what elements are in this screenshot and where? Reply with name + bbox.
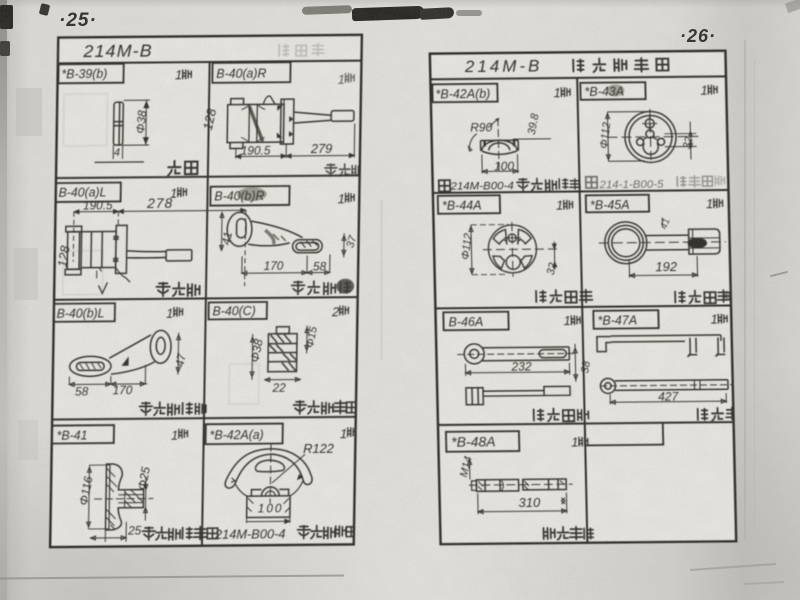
svg-text:25: 25 xyxy=(127,523,142,537)
svg-text:Φ112: Φ112 xyxy=(460,232,475,260)
svg-text:*B-39(b): *B-39(b) xyxy=(61,66,107,80)
svg-text:R122: R122 xyxy=(303,440,334,455)
svg-text:*B-42A(b): *B-42A(b) xyxy=(436,86,491,101)
svg-text:170: 170 xyxy=(113,382,133,396)
svg-text:Φ38: Φ38 xyxy=(133,109,149,134)
svg-text:190.5: 190.5 xyxy=(83,198,113,212)
svg-text:192: 192 xyxy=(656,259,679,274)
svg-text:*B-45A: *B-45A xyxy=(590,197,630,211)
svg-text:128: 128 xyxy=(55,243,73,267)
svg-text:*B-47A: *B-47A xyxy=(598,313,638,327)
svg-text:214M-B00-4: 214M-B00-4 xyxy=(450,180,515,193)
svg-text:1: 1 xyxy=(554,85,562,100)
svg-text:1: 1 xyxy=(340,425,347,440)
svg-text:1: 1 xyxy=(706,196,714,211)
svg-text:Φ112: Φ112 xyxy=(599,121,614,149)
svg-text:1: 1 xyxy=(175,67,182,82)
svg-text:170: 170 xyxy=(264,258,284,272)
svg-text:190.5: 190.5 xyxy=(241,143,271,157)
svg-text:279: 279 xyxy=(310,140,333,155)
svg-text:Φ38: Φ38 xyxy=(248,337,266,363)
svg-text:427: 427 xyxy=(658,389,680,403)
svg-text:B-46A: B-46A xyxy=(449,314,484,328)
svg-text:38: 38 xyxy=(580,359,594,374)
svg-text:2: 2 xyxy=(331,304,339,319)
svg-text:41: 41 xyxy=(659,216,673,230)
svg-text:*B-42A(a): *B-42A(a) xyxy=(210,427,264,442)
svg-text:1: 1 xyxy=(556,197,564,212)
svg-text:B-40(C): B-40(C) xyxy=(212,303,255,317)
svg-text:*B-41: *B-41 xyxy=(57,428,88,442)
svg-text:B-40(a)R: B-40(a)R xyxy=(216,66,266,81)
svg-text:32: 32 xyxy=(545,261,560,276)
svg-text:R90: R90 xyxy=(470,120,493,134)
svg-text:214-1-B00-5: 214-1-B00-5 xyxy=(599,178,665,191)
svg-text:1: 1 xyxy=(338,191,345,206)
svg-text:37: 37 xyxy=(344,233,359,249)
svg-text:278: 278 xyxy=(146,194,173,210)
svg-text:41: 41 xyxy=(219,230,235,245)
svg-text:310: 310 xyxy=(519,494,542,509)
svg-text:32: 32 xyxy=(681,135,696,150)
svg-text:4: 4 xyxy=(114,146,120,158)
svg-text:1: 1 xyxy=(701,82,709,97)
svg-text:100: 100 xyxy=(494,159,515,173)
svg-text:214M-B00-4: 214M-B00-4 xyxy=(214,526,286,542)
svg-text:*B-48A: *B-48A xyxy=(451,433,496,449)
svg-text:1: 1 xyxy=(564,313,572,328)
svg-text:1: 1 xyxy=(571,434,579,449)
svg-text:1: 1 xyxy=(338,71,345,86)
svg-text:B-40(b)L: B-40(b)L xyxy=(56,306,104,321)
svg-text:22: 22 xyxy=(271,380,286,394)
svg-text:100: 100 xyxy=(258,501,284,515)
svg-text:*B-44A: *B-44A xyxy=(442,198,482,212)
svg-text:M14: M14 xyxy=(458,455,475,479)
svg-text:128: 128 xyxy=(200,106,220,131)
svg-text:Φ116: Φ116 xyxy=(76,474,95,505)
svg-text:214M-B: 214M-B xyxy=(82,40,153,61)
svg-text:1: 1 xyxy=(166,305,173,320)
svg-text:47: 47 xyxy=(173,352,189,368)
svg-text:39.8: 39.8 xyxy=(526,111,542,135)
svg-text:1: 1 xyxy=(711,311,719,326)
svg-text:232: 232 xyxy=(511,359,533,373)
svg-text:214M-B: 214M-B xyxy=(464,56,543,76)
svg-text:B-40(a)L: B-40(a)L xyxy=(58,185,106,200)
svg-text:Φ25: Φ25 xyxy=(135,465,153,491)
svg-text:58: 58 xyxy=(75,384,89,398)
svg-text:58: 58 xyxy=(313,259,327,273)
svg-text:1: 1 xyxy=(171,427,178,442)
